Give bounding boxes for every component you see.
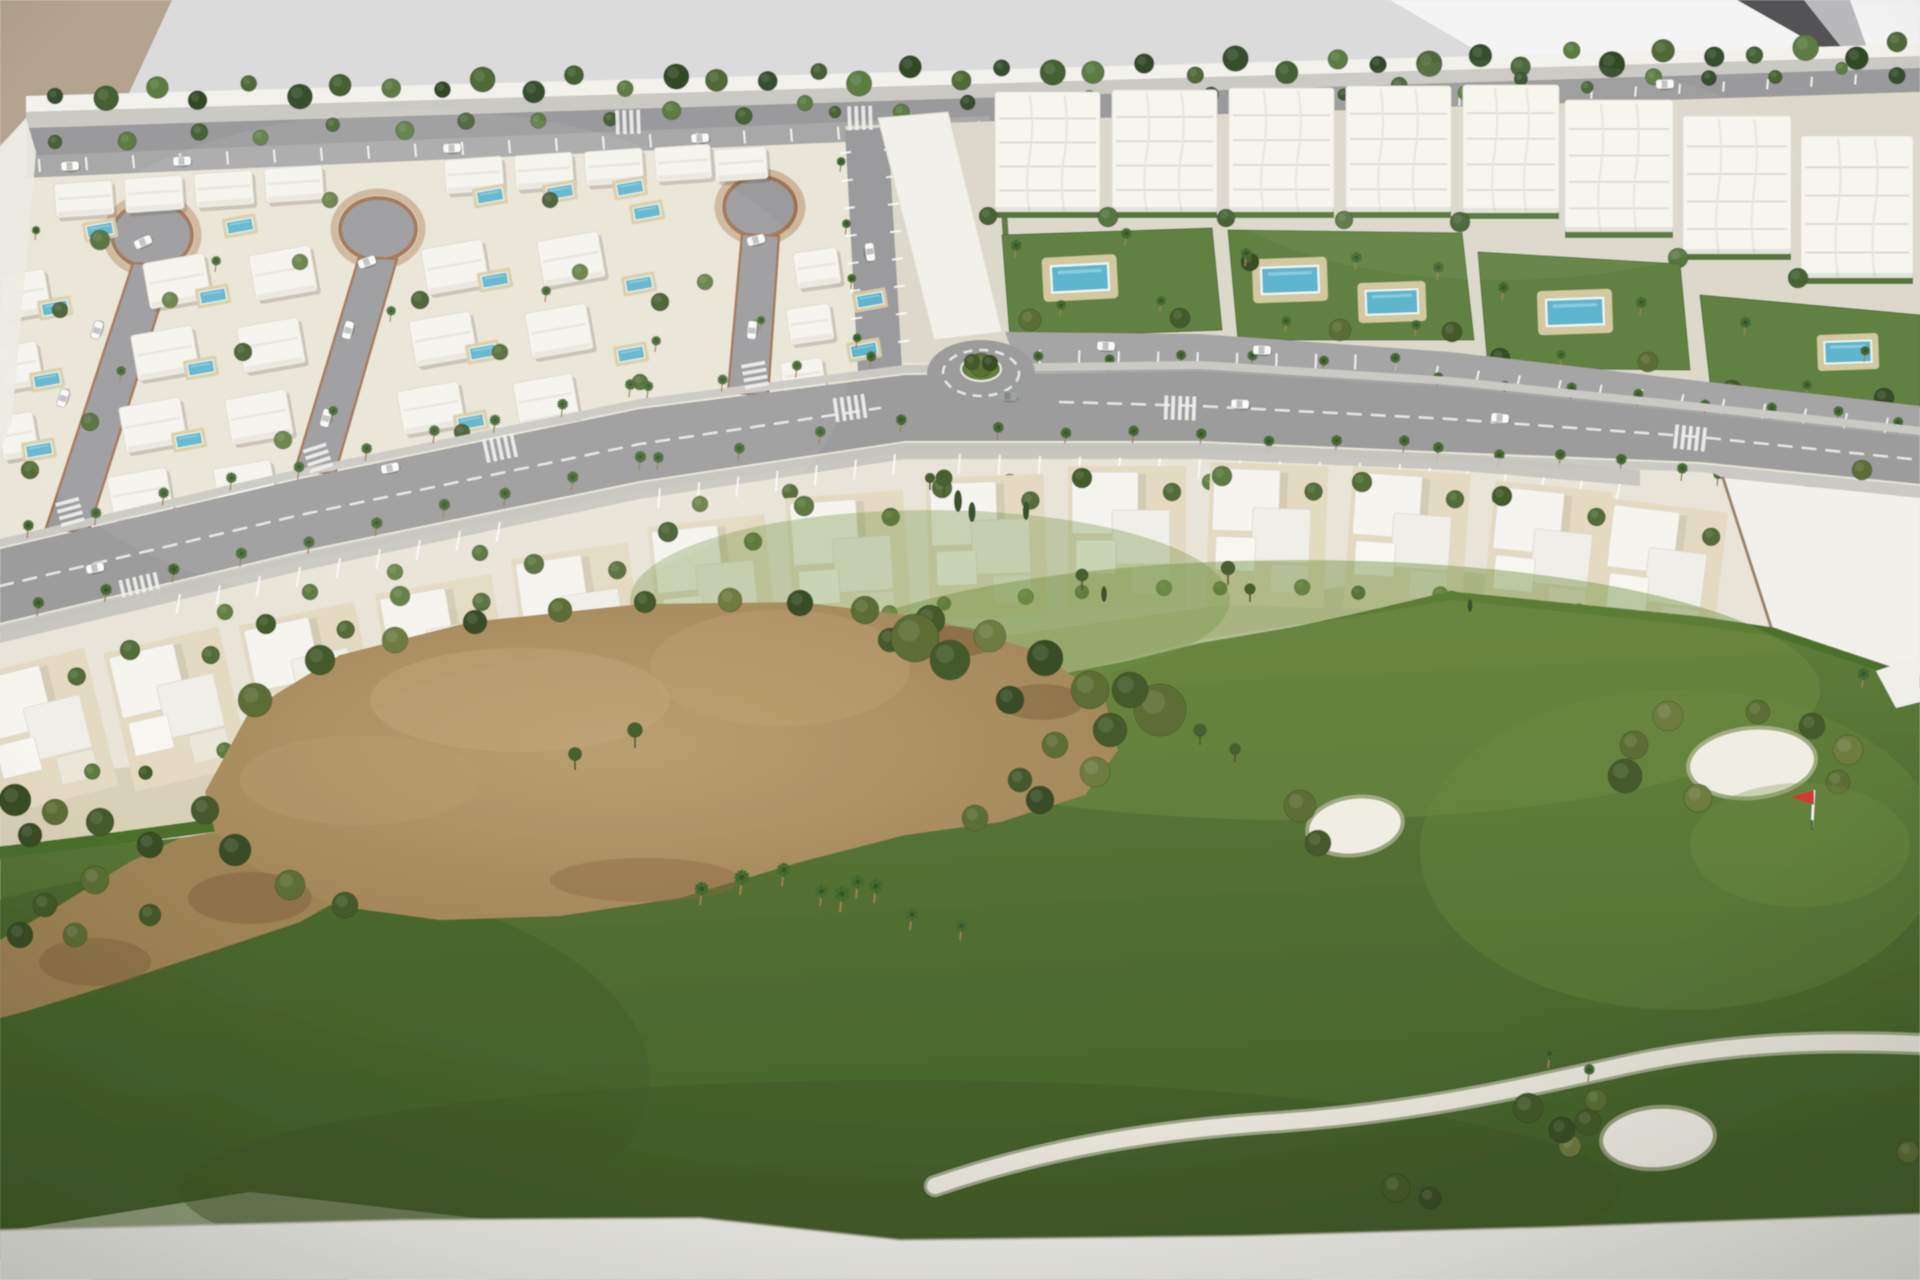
model-render-root — [0, 0, 1920, 1280]
scale-model-scene — [0, 0, 1920, 1280]
architectural-model-photo — [0, 0, 1920, 1280]
photo-vignette — [0, 0, 1920, 1280]
